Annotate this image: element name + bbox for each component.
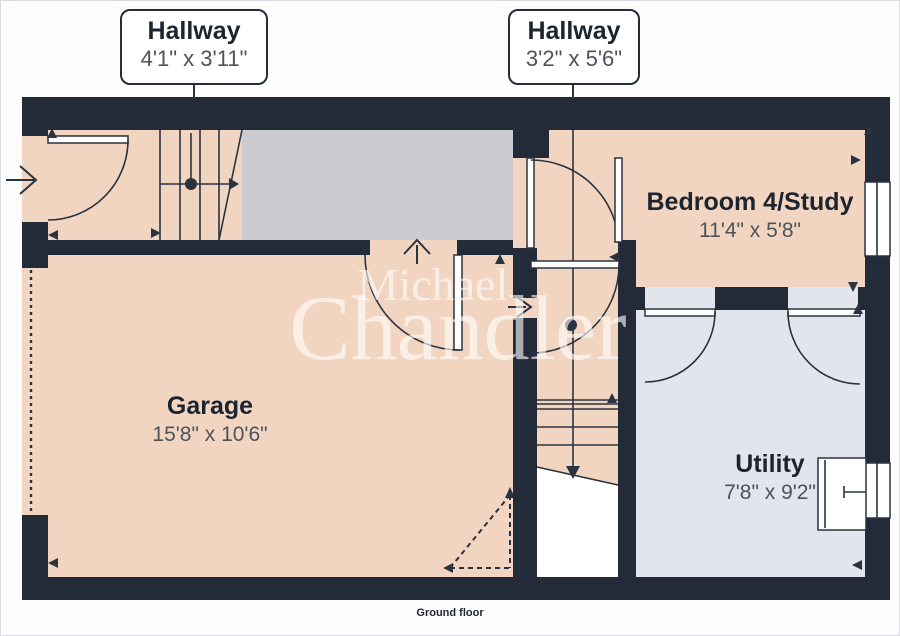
room-name: Utility bbox=[650, 450, 890, 479]
wall-bedroom-bottom bbox=[715, 287, 788, 310]
label-bedroom4-study: Bedroom 4/Study 11'4" x 5'8" bbox=[628, 188, 872, 244]
front-door-leaf bbox=[48, 136, 128, 143]
room-name: Bedroom 4/Study bbox=[628, 188, 872, 217]
room-name: Garage bbox=[90, 392, 330, 421]
utility-floor bbox=[636, 287, 865, 577]
wall-bottom bbox=[22, 577, 890, 600]
utility-door-b-sill bbox=[788, 309, 860, 316]
wall-left bbox=[22, 515, 48, 600]
wall-garage-top bbox=[457, 240, 513, 255]
room-dimensions: 15'8" x 10'6" bbox=[90, 421, 330, 448]
newel-post-dot bbox=[185, 178, 197, 190]
label-garage: Garage 15'8" x 10'6" bbox=[90, 392, 330, 448]
stairs-upper-gray bbox=[242, 130, 513, 240]
newel-post-dot bbox=[565, 319, 577, 331]
room-dimensions: 7'8" x 9'2" bbox=[650, 479, 890, 506]
room-dimensions: 3'2" x 5'6" bbox=[510, 46, 638, 72]
room-name: Hallway bbox=[122, 18, 266, 46]
wall-bedroom-bottom bbox=[618, 287, 645, 310]
wall-top bbox=[22, 97, 890, 130]
floor-name: Ground floor bbox=[0, 607, 900, 619]
room-name: Hallway bbox=[510, 18, 638, 46]
wall-hall2-left bbox=[513, 130, 549, 158]
wall-hall2-left bbox=[513, 248, 537, 298]
wall-right bbox=[865, 97, 890, 182]
wall-left bbox=[22, 97, 48, 136]
callout-leaders bbox=[194, 85, 573, 99]
floorplan-page: Michael Chandler Hallway 4'1" x 3'11" Ha… bbox=[0, 0, 900, 636]
utility-door-a-sill bbox=[645, 309, 715, 316]
wall-right bbox=[865, 518, 890, 600]
callout-hallway-2: Hallway 3'2" x 5'6" bbox=[508, 9, 640, 85]
room-dimensions: 11'4" x 5'8" bbox=[628, 217, 872, 244]
wall-left bbox=[22, 222, 48, 268]
garage-door-opening bbox=[22, 268, 48, 515]
floorplan-drawing bbox=[0, 0, 900, 636]
hall2-upper-door-leaf bbox=[527, 158, 534, 248]
wall-garage-top bbox=[48, 240, 370, 255]
hall2-lower-door-leaf bbox=[531, 261, 619, 268]
wall-garage-right bbox=[513, 318, 537, 577]
room-dimensions: 4'1" x 3'11" bbox=[122, 46, 266, 72]
bedroom-doorway-sill bbox=[615, 158, 622, 242]
label-utility: Utility 7'8" x 9'2" bbox=[650, 450, 890, 506]
callout-hallway-1: Hallway 4'1" x 3'11" bbox=[120, 9, 268, 85]
wall-right bbox=[865, 256, 890, 463]
garage-inner-door-leaf bbox=[454, 255, 462, 350]
